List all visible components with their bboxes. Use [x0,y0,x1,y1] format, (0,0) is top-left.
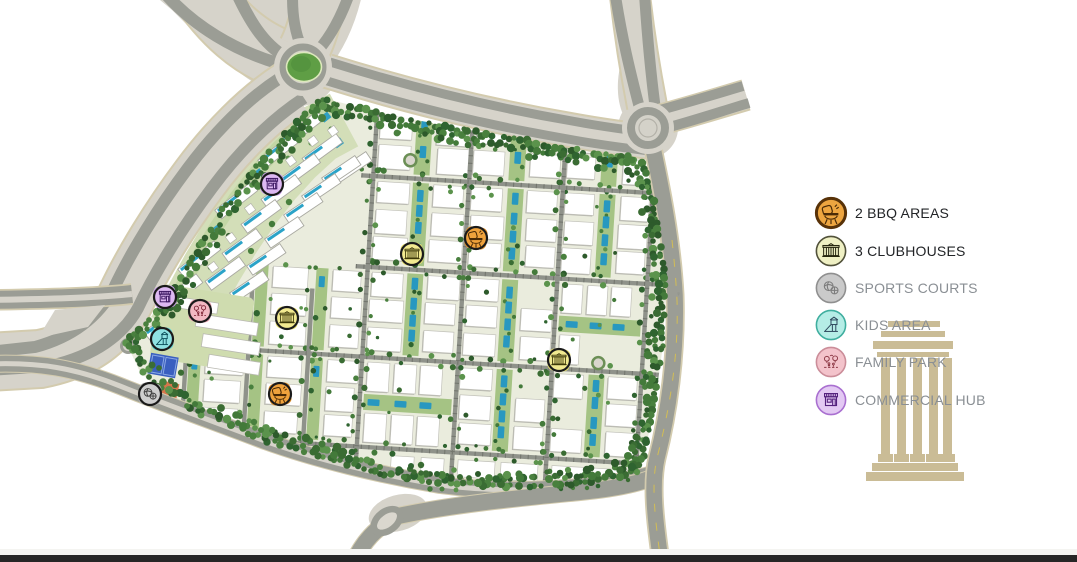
svg-text:2 BBQ AREAS: 2 BBQ AREAS [855,205,949,221]
svg-text:COMMERCIAL HUB: COMMERCIAL HUB [855,392,986,408]
svg-text:3 CLUBHOUSES: 3 CLUBHOUSES [855,243,966,259]
svg-text:SPORTS COURTS: SPORTS COURTS [855,280,978,296]
svg-text:FAMILY PARK: FAMILY PARK [855,354,947,370]
svg-text:KIDS AREA: KIDS AREA [855,317,931,333]
svg-text:♀: ♀ [676,291,681,298]
